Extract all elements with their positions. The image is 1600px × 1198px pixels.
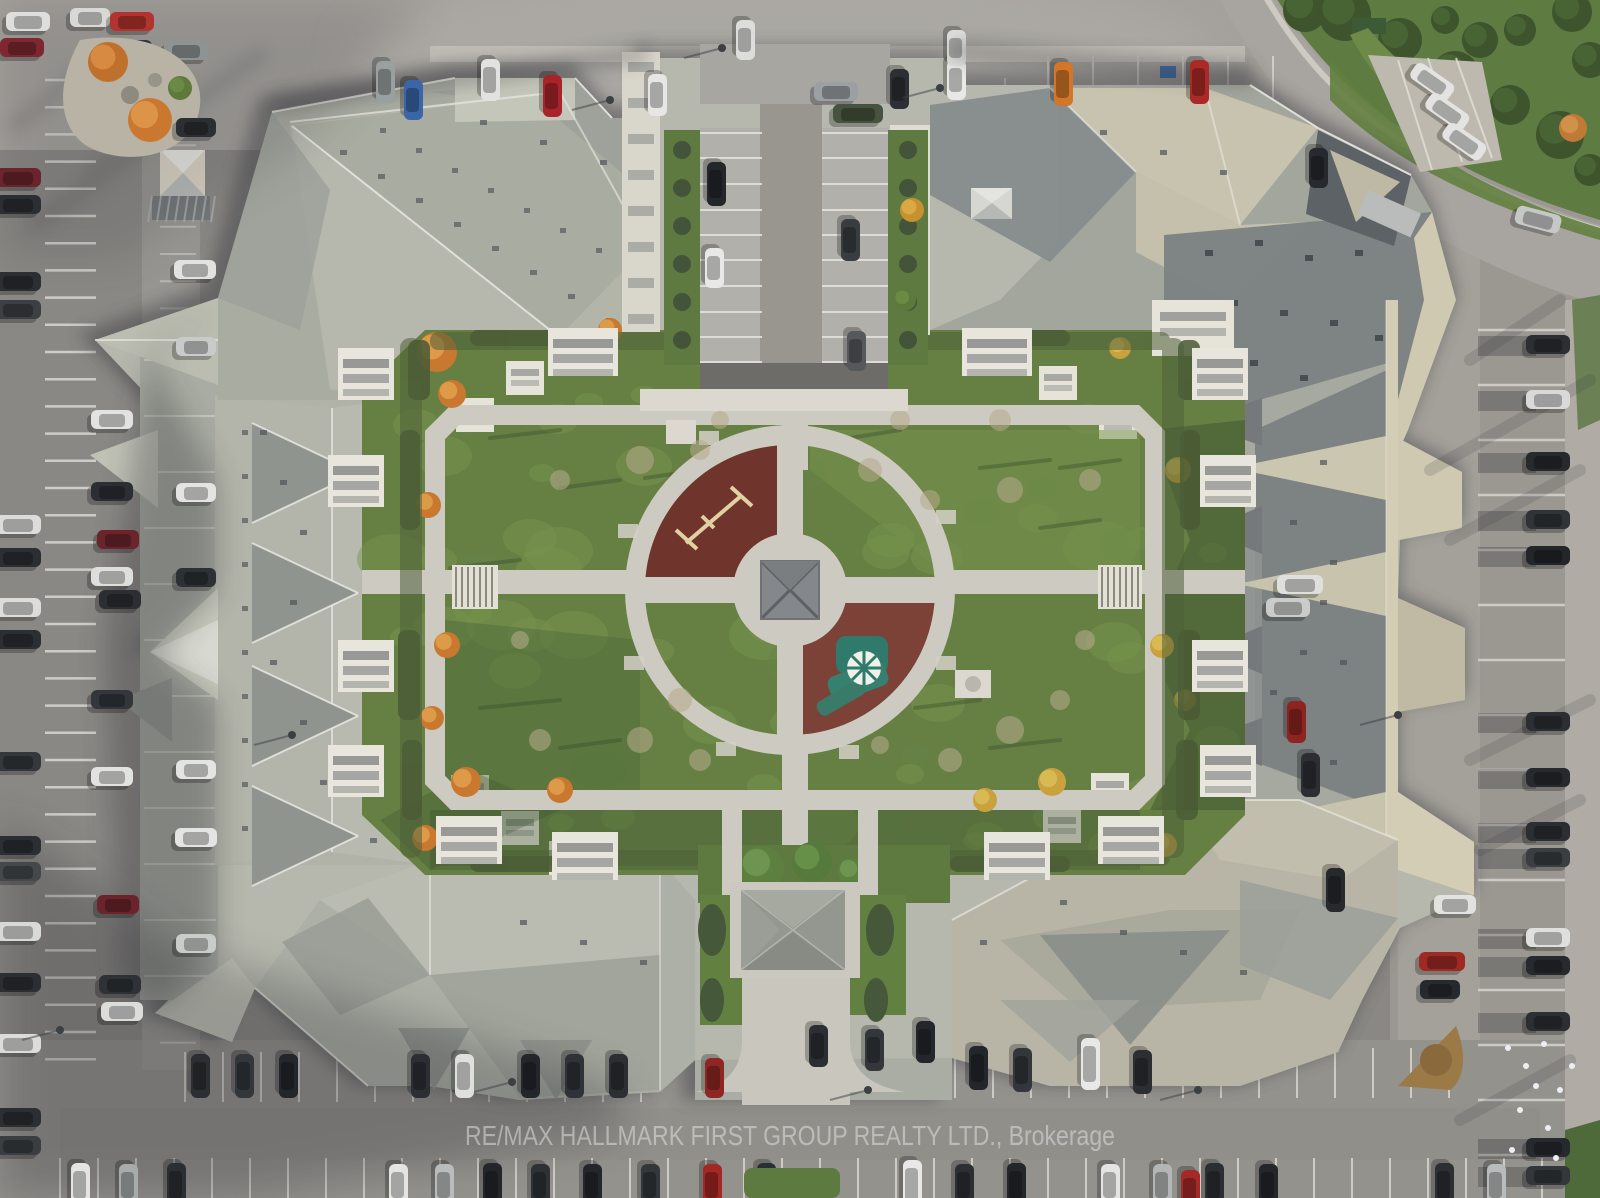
- svg-text:RE/MAX HALLMARK FIRST GROUP RE: RE/MAX HALLMARK FIRST GROUP REALTY LTD.,…: [465, 1120, 1115, 1151]
